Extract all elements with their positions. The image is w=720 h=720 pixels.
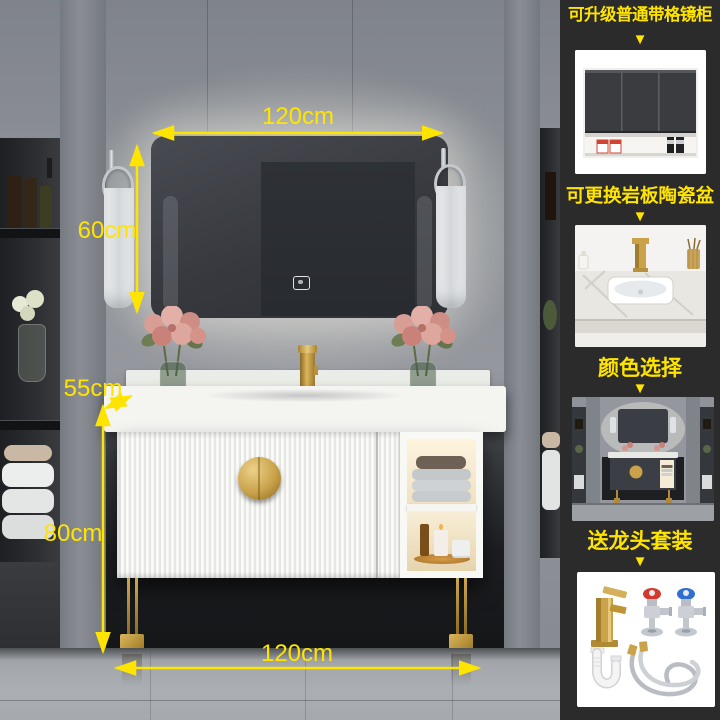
hanging-towel-right bbox=[436, 186, 466, 308]
folded-towel bbox=[412, 480, 471, 491]
marble-floor bbox=[0, 648, 560, 720]
options-sidebar: 可升级普通带格镜柜 ▼ bbox=[560, 0, 720, 720]
triangle-down-icon: ▼ bbox=[560, 209, 720, 224]
white-towel bbox=[2, 463, 54, 487]
option-label-mirror-cabinet: 可升级普通带格镜柜 bbox=[560, 6, 720, 26]
gold-round-handle bbox=[238, 457, 281, 500]
option-card-ceramic-basin[interactable] bbox=[575, 225, 706, 347]
floor-tile-seam bbox=[0, 700, 560, 701]
gold-leg bbox=[127, 578, 130, 638]
option-card-faucet-set[interactable] bbox=[577, 572, 715, 707]
right-wall-niche bbox=[540, 128, 560, 558]
niche-base bbox=[0, 562, 60, 654]
gold-faucet-top bbox=[298, 345, 317, 353]
triangle-down-icon: ▼ bbox=[560, 554, 720, 569]
green-plant bbox=[543, 300, 557, 330]
beige-towel bbox=[542, 432, 560, 448]
led-mirror bbox=[151, 136, 448, 318]
folded-towel bbox=[412, 469, 471, 480]
dark-folded-towel bbox=[416, 456, 466, 469]
mirror-reflection bbox=[261, 162, 415, 316]
amber-bottle bbox=[545, 172, 556, 220]
bathroom-scene: 120cm 60cm 55cm 80cm 120cm bbox=[0, 0, 560, 720]
white-towel bbox=[542, 450, 560, 510]
gold-leg bbox=[456, 578, 459, 638]
floor-contact-shadow bbox=[0, 648, 560, 660]
door-gap bbox=[376, 432, 378, 578]
amber-bottle bbox=[24, 178, 37, 228]
hanging-towel-left bbox=[104, 188, 134, 308]
glass-vase bbox=[18, 324, 46, 382]
mirror-towel-reflection bbox=[417, 196, 432, 310]
gold-leg bbox=[464, 578, 467, 638]
floor-tile-seam bbox=[305, 648, 306, 720]
option-label-faucet-set: 送龙头套装 bbox=[560, 529, 720, 554]
integrated-basin bbox=[204, 389, 404, 402]
white-towel bbox=[2, 515, 54, 539]
dropper-bottle bbox=[47, 158, 52, 178]
white-towel bbox=[2, 489, 54, 513]
product-image: 120cm 60cm 55cm 80cm 120cm 可升级普通带格镜柜 ▼ bbox=[0, 0, 720, 720]
open-shelf-unit bbox=[400, 432, 483, 578]
triangle-down-icon: ▼ bbox=[560, 32, 720, 47]
green-bottle bbox=[40, 186, 52, 228]
option-label-ceramic-basin: 可更换岩板陶瓷盆 bbox=[560, 185, 720, 207]
amber-bottle bbox=[420, 524, 429, 556]
mirror-touch-button bbox=[293, 276, 310, 290]
mirror-cabinet-thumbnail bbox=[575, 50, 706, 174]
foot-reflection bbox=[122, 654, 142, 686]
shelf-divider bbox=[407, 504, 476, 511]
candle bbox=[434, 530, 448, 556]
option-card-dark-vanity[interactable] bbox=[572, 397, 714, 521]
left-wall-niche bbox=[0, 138, 60, 562]
handle-seam bbox=[258, 457, 260, 500]
right-marble-pillar bbox=[504, 0, 540, 650]
triangle-down-icon: ▼ bbox=[560, 381, 720, 396]
gold-leg bbox=[135, 578, 138, 638]
cream-jar bbox=[452, 540, 470, 558]
faucet-set-thumbnail bbox=[577, 572, 715, 707]
marble-countertop bbox=[104, 386, 506, 432]
fluted-doors bbox=[117, 432, 400, 578]
white-rose bbox=[20, 306, 35, 321]
candle-flame bbox=[439, 524, 443, 530]
faucet-handle bbox=[314, 366, 318, 375]
touch-button-dot bbox=[298, 280, 303, 284]
option-label-color-selection: 颜色选择 bbox=[560, 356, 720, 381]
niche-shelf bbox=[0, 228, 60, 238]
dark-vanity-thumbnail bbox=[572, 397, 714, 521]
floor-tile-seam bbox=[150, 648, 151, 720]
foot-reflection bbox=[451, 654, 471, 686]
niche-shelf bbox=[0, 420, 60, 430]
vanity-cabinet bbox=[117, 432, 483, 578]
mirror-towel-reflection bbox=[163, 196, 178, 310]
folded-towel bbox=[412, 491, 471, 502]
amber-bottle bbox=[8, 176, 21, 228]
left-marble-pillar bbox=[60, 0, 106, 655]
beige-towel bbox=[4, 445, 52, 461]
option-card-mirror-cabinet[interactable] bbox=[575, 50, 706, 174]
ceramic-basin-thumbnail bbox=[575, 225, 706, 347]
